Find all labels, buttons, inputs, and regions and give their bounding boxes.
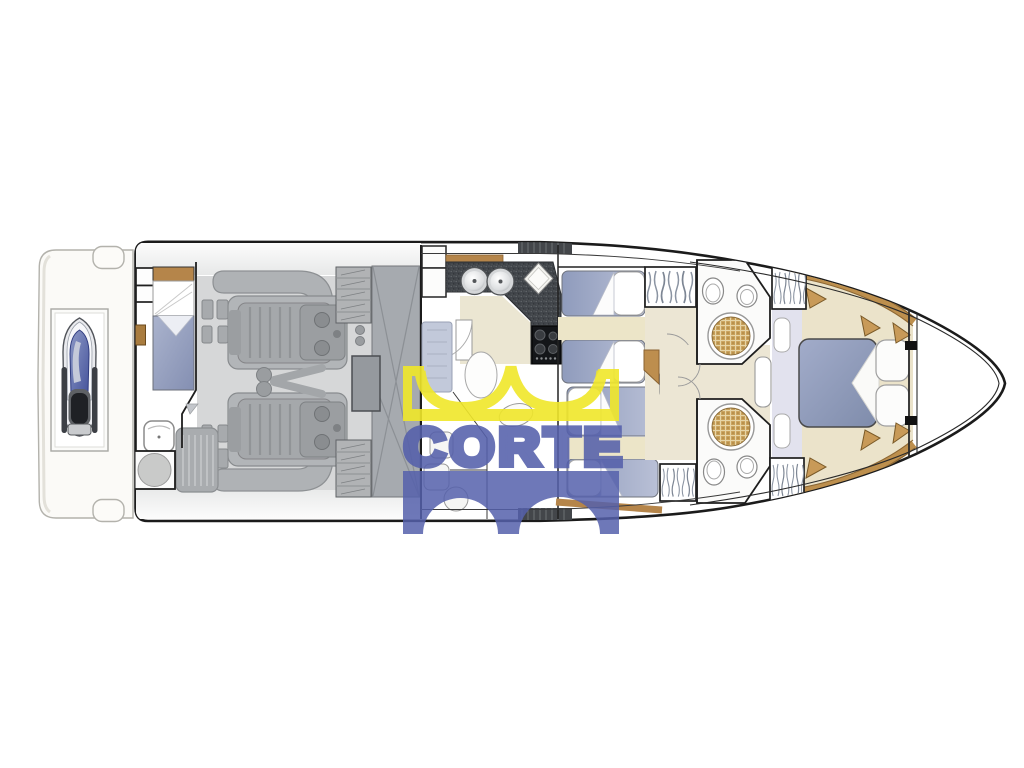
svg-text:CORTE: CORTE [404, 418, 626, 477]
